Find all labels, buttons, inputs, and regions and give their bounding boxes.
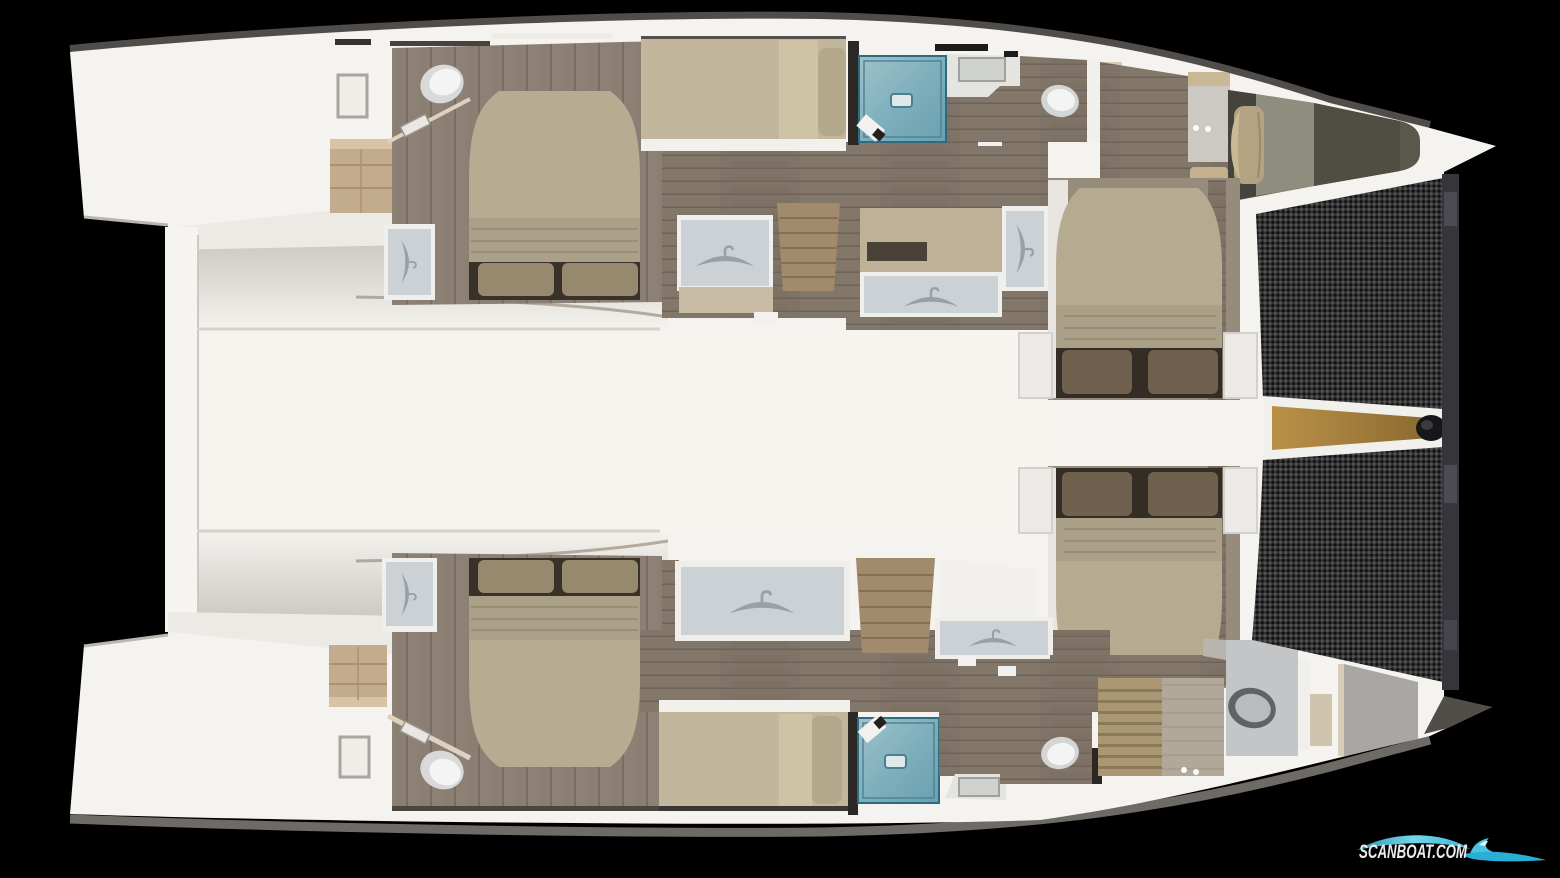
svg-text:SCANBOAT.COM: SCANBOAT.COM <box>1359 842 1468 863</box>
